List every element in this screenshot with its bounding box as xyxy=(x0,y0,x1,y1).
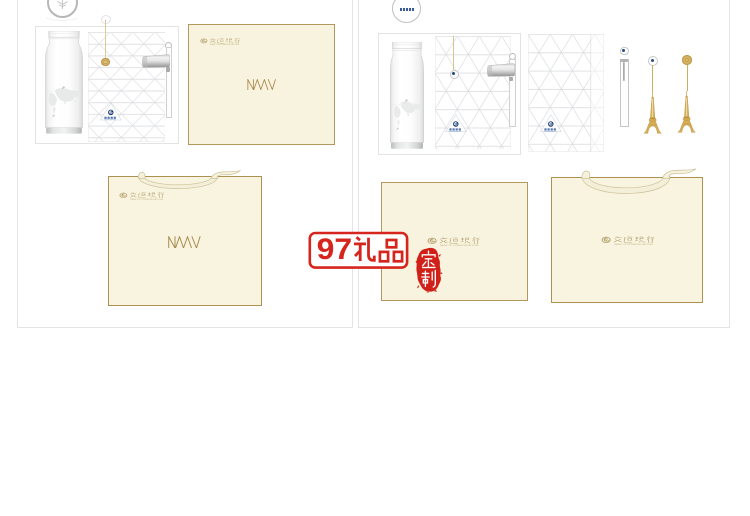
svg-text:97: 97 xyxy=(317,233,353,266)
